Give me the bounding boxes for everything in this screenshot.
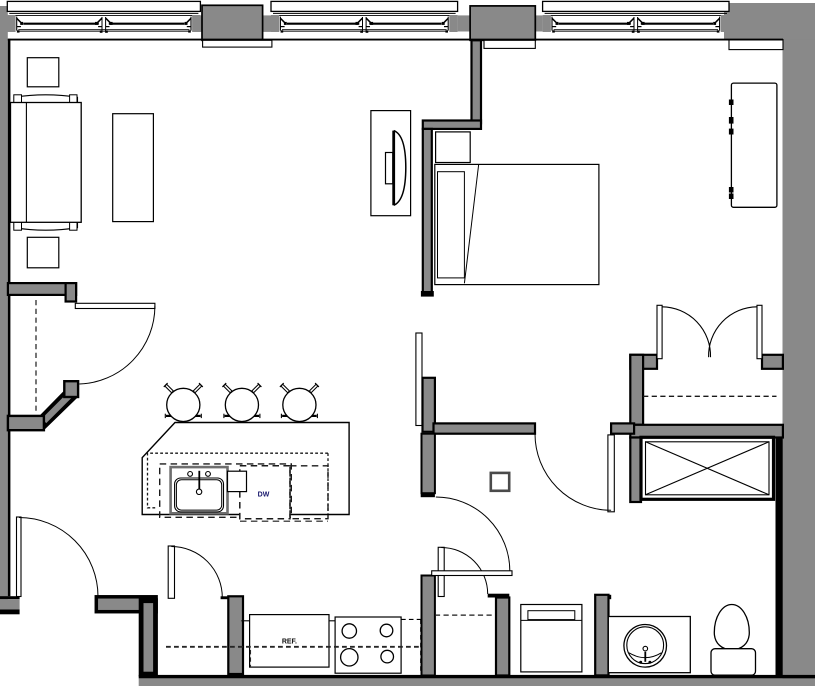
svg-text:REF.: REF. xyxy=(282,639,297,646)
svg-text:DW: DW xyxy=(258,491,270,498)
